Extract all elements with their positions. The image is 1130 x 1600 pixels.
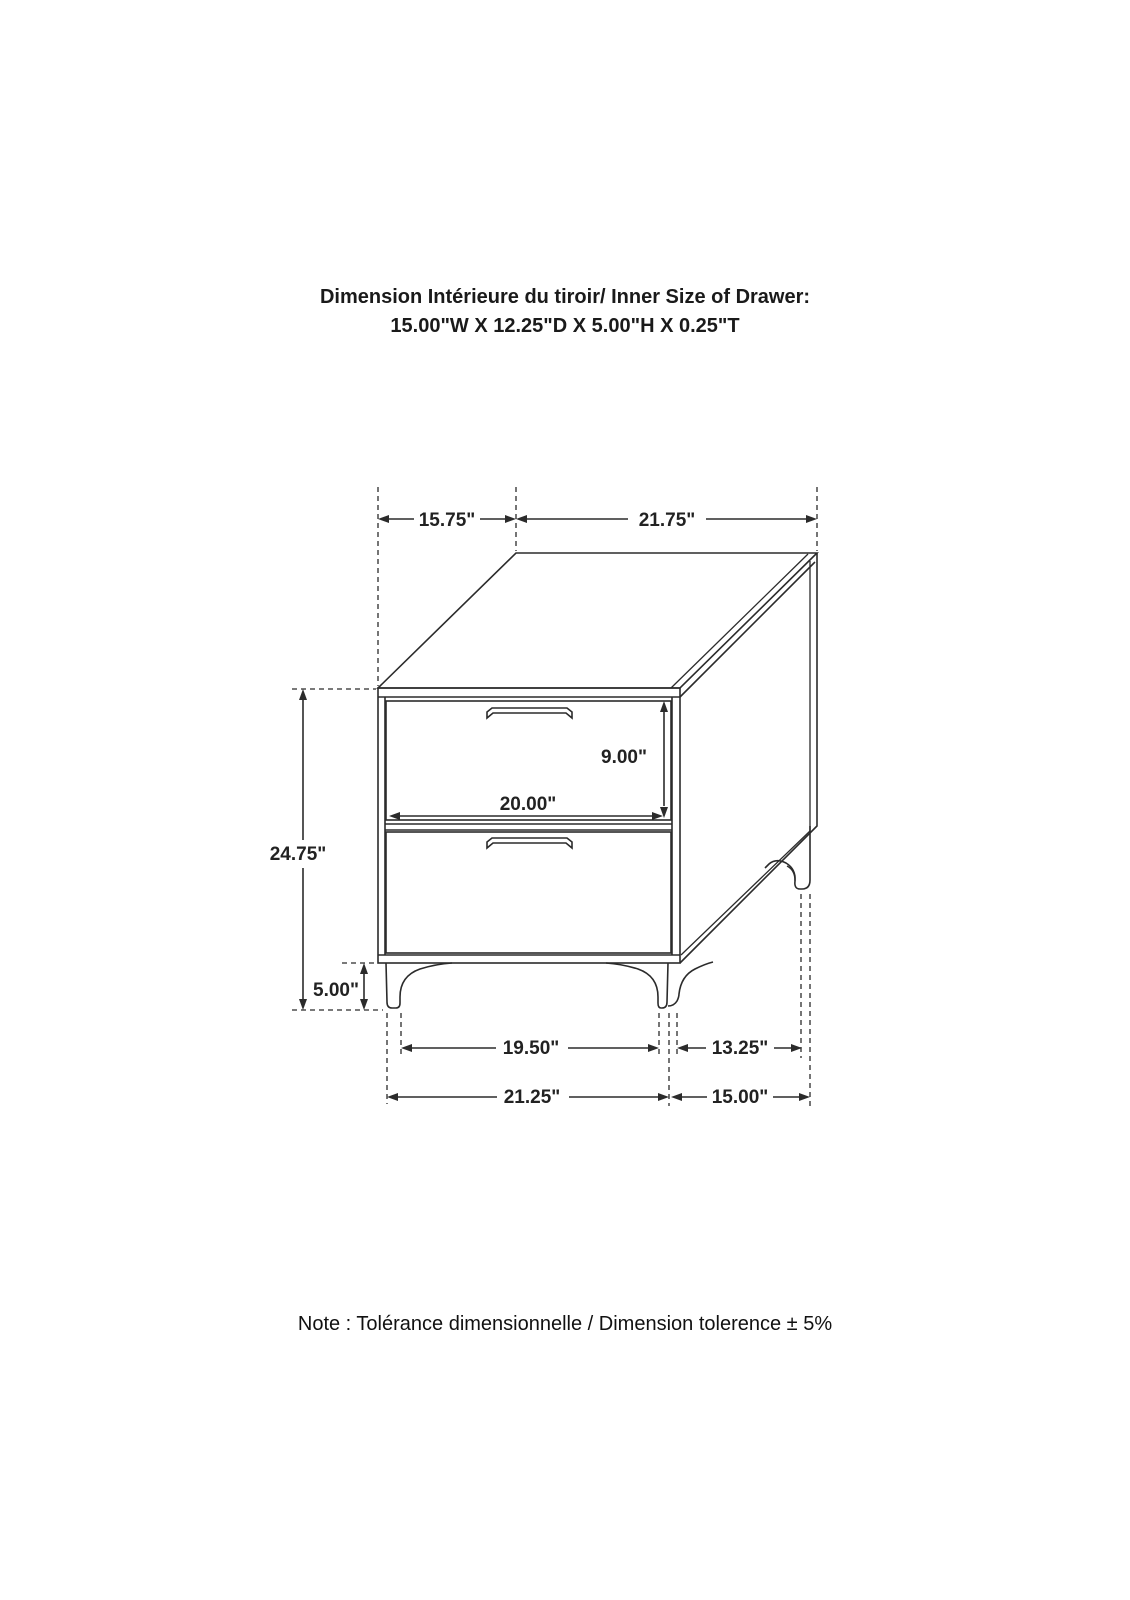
arrowhead-left xyxy=(516,515,527,523)
dim-front-feet-inner: 19.50" xyxy=(401,1038,659,1059)
dim-drawer-height: 9.00" xyxy=(601,701,668,818)
dim-depth-top: 15.75" xyxy=(378,510,516,531)
dim-label-side-feet-outer: 15.00" xyxy=(712,1087,769,1108)
arrowhead-left xyxy=(389,812,400,820)
dim-label-drawer-height: 9.00" xyxy=(601,747,647,768)
cabinet-top-face xyxy=(378,553,817,688)
arrowhead-left xyxy=(387,1093,398,1101)
dim-side-feet-inner: 13.25" xyxy=(677,1038,802,1059)
dim-width-top: 21.75" xyxy=(516,510,817,531)
dim-label-depth-top: 15.75" xyxy=(419,510,476,531)
back-right-leg xyxy=(765,826,810,889)
arrowhead-left xyxy=(677,1044,688,1052)
arrowhead-left xyxy=(671,1093,682,1101)
arrowhead-left xyxy=(378,515,389,523)
arrowhead-right xyxy=(658,1093,669,1101)
dim-overall-height: 24.75" xyxy=(270,689,327,1010)
top-drawer-handle xyxy=(487,708,572,718)
front-right-leg xyxy=(606,963,668,1008)
dim-drawer-width: 20.00" xyxy=(389,794,663,820)
arrowhead-right xyxy=(806,515,817,523)
front-left-leg xyxy=(386,963,452,1008)
arrowhead-right xyxy=(648,1044,659,1052)
bottom-drawer-front xyxy=(386,832,671,953)
dim-label-front-feet-outer: 21.25" xyxy=(504,1087,561,1108)
arrowhead-up xyxy=(660,701,668,712)
dim-front-feet-outer: 21.25" xyxy=(387,1087,669,1108)
dim-label-drawer-width: 20.00" xyxy=(500,794,557,815)
drawing-page: Dimension Intérieure du tiroir/ Inner Si… xyxy=(0,0,1130,1600)
cabinet-front-face xyxy=(378,688,680,963)
dim-label-width-top: 21.75" xyxy=(639,510,696,531)
dim-label-side-feet-inner: 13.25" xyxy=(712,1038,769,1059)
front-right-leg-side-flare xyxy=(668,962,713,1006)
arrowhead-right xyxy=(652,812,663,820)
side-bottom-inner-edge xyxy=(681,831,810,955)
dim-leg-height: 5.00" xyxy=(313,963,368,1010)
cabinet-top-band-side xyxy=(680,562,815,697)
cabinet-side-face xyxy=(680,553,817,963)
bottom-drawer-handle xyxy=(487,838,572,848)
arrowhead-right xyxy=(799,1093,810,1101)
tolerance-note: Note : Tolérance dimensionnelle / Dimens… xyxy=(0,1313,1130,1336)
dim-label-leg-height: 5.00" xyxy=(313,980,359,1001)
arrowhead-right xyxy=(505,515,516,523)
nightstand-dimension-drawing: 15.75" 21.75" 24.75" 5.00" xyxy=(0,0,1130,1600)
dim-label-front-feet-inner: 19.50" xyxy=(503,1038,560,1059)
arrowhead-left xyxy=(401,1044,412,1052)
arrowhead-up xyxy=(299,689,307,700)
back-right-leg-inner-curve xyxy=(787,866,795,881)
cabinet-outline xyxy=(378,553,817,1008)
arrowhead-down xyxy=(360,999,368,1010)
dim-label-overall-height: 24.75" xyxy=(270,844,327,865)
cabinet-top-inner-edge xyxy=(671,554,808,688)
arrowhead-down xyxy=(299,999,307,1010)
arrowhead-up xyxy=(360,963,368,974)
dim-side-feet-outer: 15.00" xyxy=(671,1087,810,1108)
